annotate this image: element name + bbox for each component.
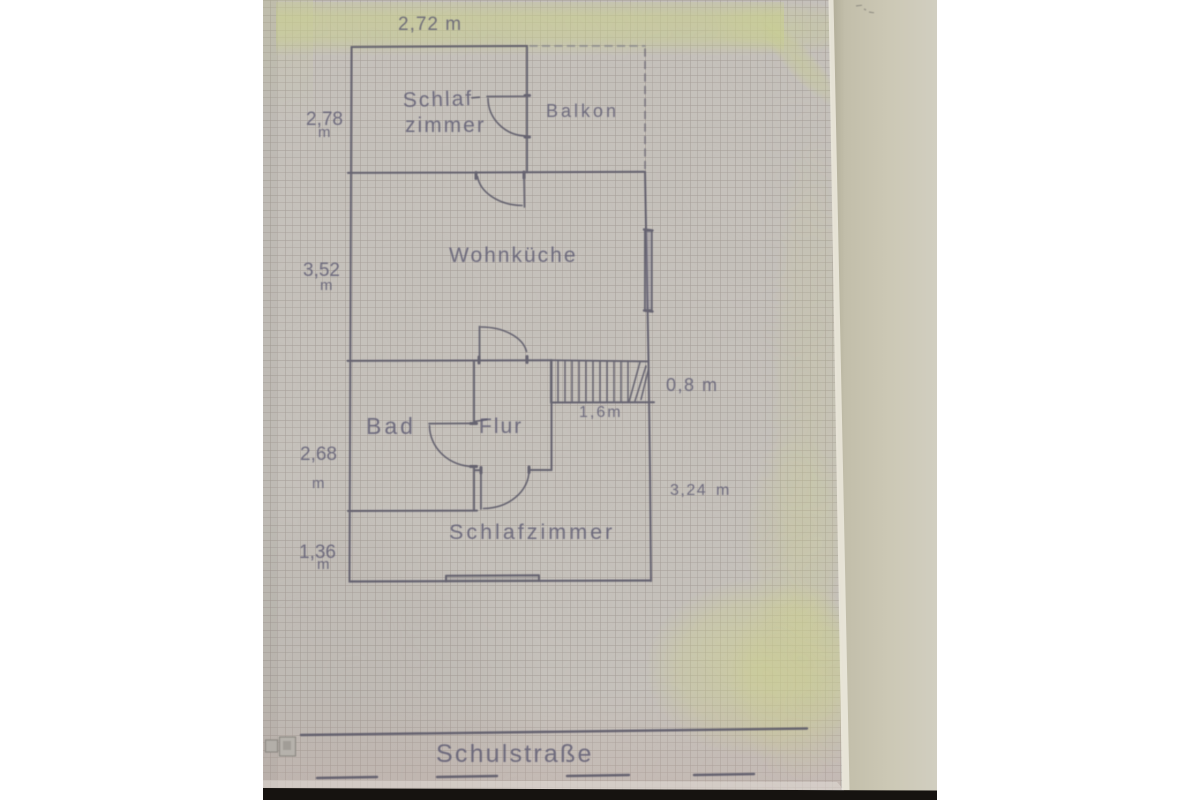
svg-text:Schlaf: Schlaf xyxy=(403,87,474,112)
svg-text:Bad: Bad xyxy=(366,413,416,439)
svg-text:m: m xyxy=(312,475,325,492)
svg-text:m: m xyxy=(318,124,331,141)
svg-text:Wohnküche: Wohnküche xyxy=(449,244,578,267)
svg-text:m: m xyxy=(317,556,330,573)
svg-text:Flur: Flur xyxy=(479,415,523,438)
svg-text:m: m xyxy=(716,482,729,499)
svg-text:1,6m: 1,6m xyxy=(579,404,623,421)
svg-text:2,68: 2,68 xyxy=(300,444,337,465)
svg-text:2,72 m: 2,72 m xyxy=(398,14,462,35)
svg-text:Schulstraße: Schulstraße xyxy=(436,740,594,768)
svg-text:zimmer: zimmer xyxy=(405,114,486,137)
svg-text:m: m xyxy=(320,277,333,294)
svg-text:Schlafzimmer: Schlafzimmer xyxy=(449,520,615,544)
svg-text:Balkon: Balkon xyxy=(546,101,619,121)
svg-text:0,8 m: 0,8 m xyxy=(666,375,719,395)
svg-text:3,24: 3,24 xyxy=(670,482,707,499)
